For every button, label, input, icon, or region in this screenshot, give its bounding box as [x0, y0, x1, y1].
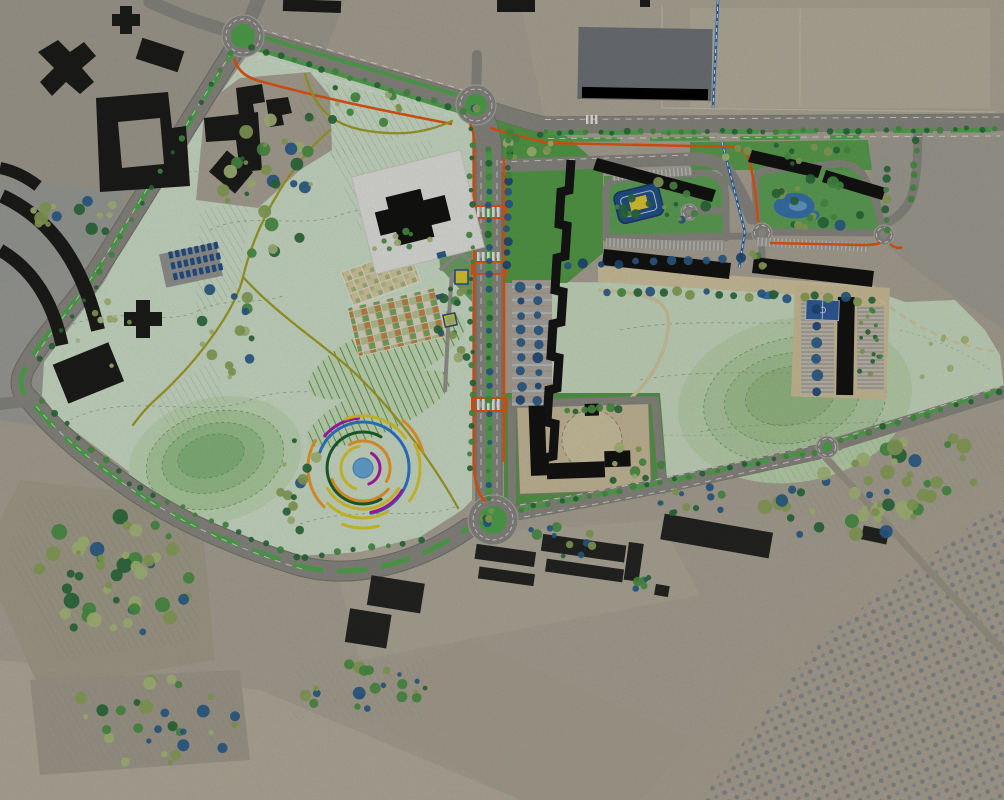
- masterplan-map: [0, 0, 1004, 800]
- masterplan-svg: [0, 0, 1004, 800]
- photo-grain-overlay: [0, 0, 1004, 800]
